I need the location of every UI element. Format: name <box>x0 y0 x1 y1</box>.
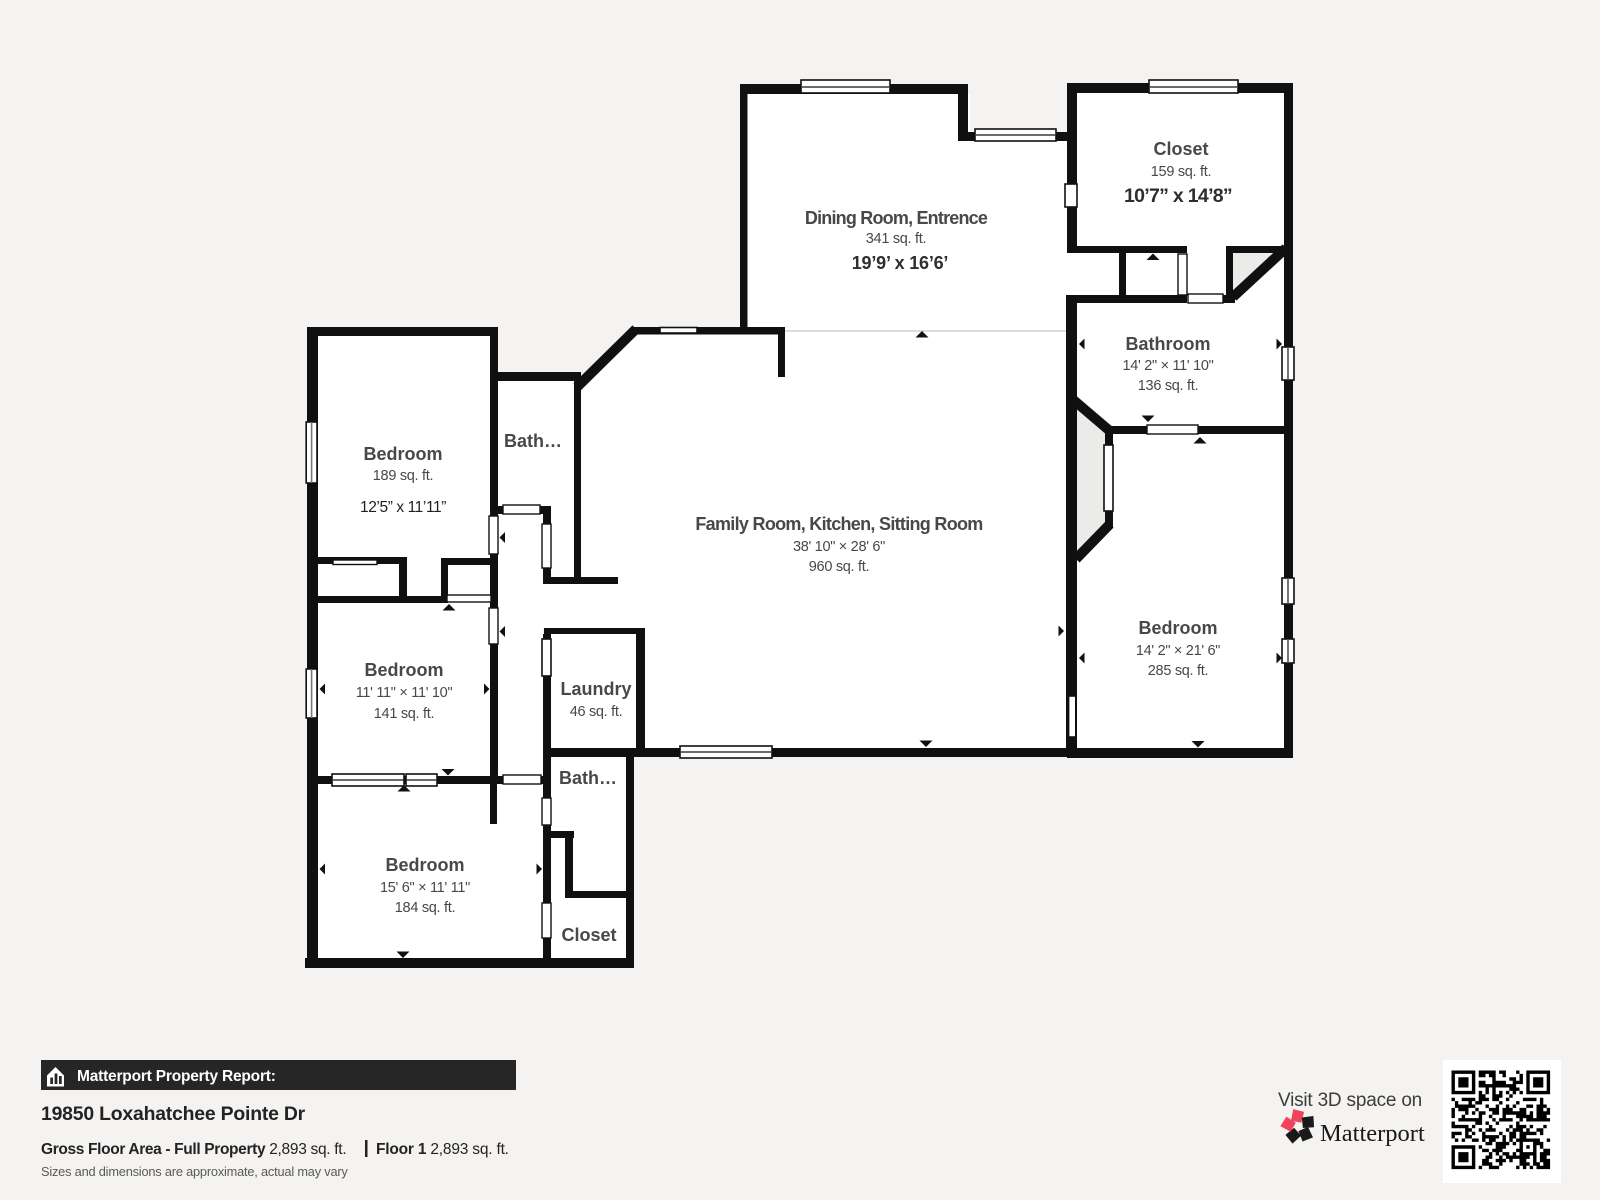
svg-text:Family Room, Kitchen, Sitting: Family Room, Kitchen, Sitting Room <box>695 514 982 534</box>
svg-text:Bath…: Bath… <box>559 768 617 788</box>
svg-text:136 sq. ft.: 136 sq. ft. <box>1138 378 1198 394</box>
svg-text:141 sq. ft.: 141 sq. ft. <box>374 706 434 722</box>
svg-text:Bedroom: Bedroom <box>363 444 442 464</box>
svg-text:Gross Floor Area - Full Proper: Gross Floor Area - Full Property 2,893 s… <box>41 1141 346 1158</box>
svg-text:184 sq. ft.: 184 sq. ft. <box>395 900 455 916</box>
svg-text:19850 Loxahatchee Pointe Dr: 19850 Loxahatchee Pointe Dr <box>41 1103 306 1125</box>
svg-text:38' 10" × 28' 6": 38' 10" × 28' 6" <box>793 539 885 555</box>
svg-text:11' 11" × 11' 10": 11' 11" × 11' 10" <box>356 685 453 701</box>
svg-text:Closet: Closet <box>561 925 616 945</box>
svg-text:960 sq. ft.: 960 sq. ft. <box>809 559 869 575</box>
svg-text:Dining Room, Entrence: Dining Room, Entrence <box>805 208 988 228</box>
svg-text:14' 2" × 11' 10": 14' 2" × 11' 10" <box>1123 358 1214 374</box>
svg-text:10’7” x 14’8”: 10’7” x 14’8” <box>1124 185 1232 207</box>
svg-text:159 sq. ft.: 159 sq. ft. <box>1151 164 1211 180</box>
svg-text:Matterport: Matterport <box>1320 1120 1425 1147</box>
svg-text:Bedroom: Bedroom <box>364 660 443 680</box>
svg-text:15' 6" × 11' 11": 15' 6" × 11' 11" <box>380 880 470 896</box>
svg-text:Floor 1 2,893 sq. ft.: Floor 1 2,893 sq. ft. <box>376 1141 509 1158</box>
svg-text:Visit 3D space on: Visit 3D space on <box>1278 1090 1422 1111</box>
svg-text:Sizes and dimensions are appro: Sizes and dimensions are approximate, ac… <box>41 1164 348 1179</box>
svg-text:Bath…: Bath… <box>504 431 562 451</box>
svg-text:14' 2" × 21' 6": 14' 2" × 21' 6" <box>1136 643 1220 659</box>
svg-text:12’5” x 11’11”: 12’5” x 11’11” <box>360 499 446 516</box>
svg-text:341 sq. ft.: 341 sq. ft. <box>866 231 926 247</box>
svg-text:Matterport Property Report:: Matterport Property Report: <box>77 1068 276 1085</box>
svg-text:285 sq. ft.: 285 sq. ft. <box>1148 663 1208 679</box>
svg-text:Laundry: Laundry <box>560 679 631 699</box>
svg-text:Bathroom: Bathroom <box>1126 334 1211 354</box>
svg-text:Bedroom: Bedroom <box>385 855 464 875</box>
svg-text:Closet: Closet <box>1153 139 1208 159</box>
svg-text:46 sq. ft.: 46 sq. ft. <box>570 704 623 720</box>
svg-text:189 sq. ft.: 189 sq. ft. <box>373 468 433 484</box>
svg-text:19’9’ x 16’6’: 19’9’ x 16’6’ <box>852 253 949 273</box>
svg-text:Bedroom: Bedroom <box>1138 618 1217 638</box>
